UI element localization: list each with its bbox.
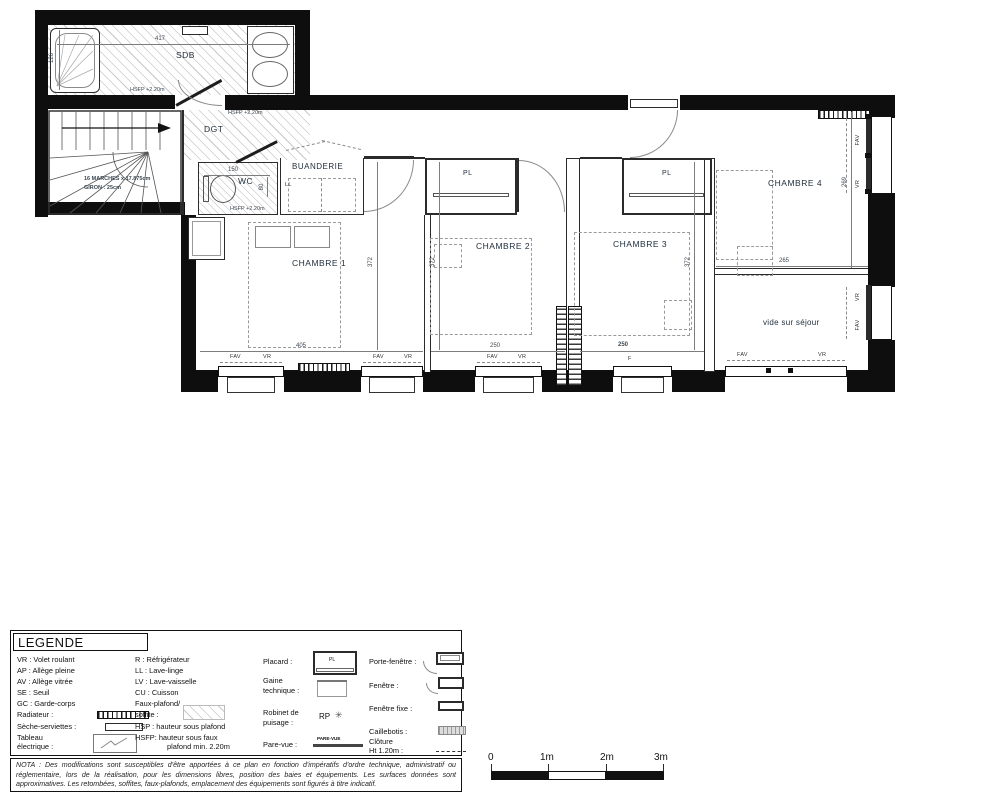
placard-label: PL	[463, 170, 472, 177]
legend-item: LV : Lave-vaisselle	[135, 677, 196, 686]
wall	[868, 95, 895, 118]
legend-item: Placard :	[263, 657, 292, 666]
legend-item: AV : Allège vitrée	[17, 677, 73, 686]
scale-tick	[548, 764, 549, 771]
fav-label: FAV	[487, 354, 498, 360]
placard-ch3	[622, 158, 712, 215]
hsfp-note: HSFP +2.20m	[230, 206, 265, 212]
vr-label: VR	[518, 354, 526, 360]
window	[613, 366, 672, 377]
dim-250: 250	[618, 342, 628, 348]
dgt-hatch	[182, 110, 310, 160]
window-hinge	[865, 153, 872, 158]
legend-item: Tableau	[17, 733, 43, 742]
staircase	[48, 110, 182, 215]
stair-note-1: 16 MARCHES x 17.875cm	[84, 176, 150, 182]
legend-item: Gaine	[263, 676, 283, 685]
fenetre-symbol	[438, 677, 464, 689]
wall	[423, 370, 475, 392]
dim-line	[439, 162, 440, 350]
placard-label: PL	[662, 170, 671, 177]
fav-label: FAV	[230, 354, 241, 360]
dim-line	[851, 112, 852, 268]
window-sill	[227, 377, 275, 393]
window-sill	[483, 377, 534, 393]
fav-label: FAV	[373, 354, 384, 360]
toilet-bowl	[210, 175, 236, 203]
wall	[680, 95, 895, 110]
dim-line	[580, 351, 704, 352]
legend-item: VR : Volet roulant	[17, 655, 75, 664]
scale-tick-label: 1m	[540, 752, 554, 763]
legend-item: Fenêtre :	[369, 681, 399, 690]
ch3-door-arc	[630, 110, 678, 158]
window-swing	[727, 360, 845, 361]
room-label-ch4: CHAMBRE 4	[768, 178, 822, 188]
dim-372: 372	[685, 257, 691, 267]
dim-line	[431, 351, 565, 352]
wall	[672, 370, 725, 392]
robinet-symbol-text: RP	[319, 712, 330, 721]
placard-symbol-shelf	[316, 668, 354, 672]
stair-note-2: GIRON : 25cm	[84, 185, 121, 191]
ch2-door-arc	[519, 160, 565, 212]
stair-dgt-divider	[182, 110, 184, 215]
fenetre-fixe-symbol	[438, 701, 464, 711]
window-sill	[369, 377, 415, 393]
legend-item: AP : Allège pleine	[17, 666, 75, 675]
dim-line	[716, 266, 868, 267]
gaine-symbol-edge	[317, 680, 347, 682]
placard-ch2-shelf	[433, 193, 509, 197]
placard-ch3-shelf	[629, 193, 704, 197]
dim-line	[694, 162, 695, 350]
window-hinge	[766, 368, 771, 373]
hsfp-note: HSFP +2.20m	[130, 87, 165, 93]
room-label-dgt: DGT	[204, 124, 223, 134]
scale-segment	[491, 771, 548, 780]
legend-item: SE : Seuil	[17, 688, 49, 697]
ch1-door-arc	[364, 160, 414, 212]
ch1-door-leaf	[364, 156, 414, 159]
caillebotis-symbol	[438, 726, 466, 735]
robinet-symbol-glyph: ✳	[335, 710, 343, 721]
legend-item: CU : Cuisson	[135, 688, 179, 697]
scale-tick-label: 0	[488, 752, 494, 763]
window	[361, 366, 423, 377]
scale-segment	[606, 771, 664, 780]
vr-label: VR	[855, 293, 861, 301]
scale-bar: 0 1m 2m 3m	[488, 752, 672, 784]
gaine-symbol	[317, 680, 347, 697]
scale-tick	[663, 764, 664, 771]
parevue-symbol-text: PARE-VUE	[317, 736, 340, 741]
dim-150: 150	[228, 167, 238, 173]
electrical-panel-zigzag	[93, 734, 137, 753]
window-swing	[846, 287, 847, 339]
dim-372: 372	[368, 257, 374, 267]
corridor-line	[580, 157, 622, 159]
legend-item: HSP : hauteur sous plafond	[135, 722, 225, 731]
pillow	[294, 226, 330, 248]
bed-ch3-fold	[664, 300, 692, 330]
legend-item: Porte-fenêtre :	[369, 657, 416, 666]
room-label-buanderie: BUANDERIE	[292, 162, 343, 171]
vr-label: VR	[404, 354, 412, 360]
toilet-tank	[203, 176, 209, 202]
dim-line	[267, 177, 268, 197]
window	[871, 116, 892, 194]
radiator	[298, 363, 350, 372]
room-label-vide: vide sur séjour	[763, 318, 820, 327]
bed-ch4-fold	[737, 246, 773, 276]
legend-item: soffite :	[135, 710, 159, 719]
legend-item: électrique :	[17, 742, 53, 751]
room-label-ch2: CHAMBRE 2	[476, 241, 530, 251]
dim-line	[204, 175, 270, 176]
accordion-door	[322, 140, 361, 150]
legend-item: technique :	[263, 686, 299, 695]
scale-segment	[548, 771, 606, 780]
f-label: F	[628, 356, 632, 362]
washer-dryer	[288, 178, 356, 212]
window	[725, 366, 847, 377]
legend-item: Faux-plafond/	[135, 699, 180, 708]
wall	[868, 193, 895, 287]
vr-label: VR	[855, 180, 861, 188]
legend: LEGENDE VR : Volet roulant AP : Allège p…	[10, 630, 462, 756]
legend-item: puisage :	[263, 718, 293, 727]
vr-label: VR	[818, 352, 826, 358]
towel-dryer	[182, 26, 208, 35]
dim-80: 80	[259, 184, 265, 191]
dim-417: 417	[155, 36, 165, 42]
wall	[181, 370, 218, 392]
wall	[35, 10, 310, 25]
window-swing	[477, 362, 540, 363]
legend-item: Robinet de	[263, 708, 299, 717]
fav-label: FAV	[855, 320, 861, 331]
room-label-ch3: CHAMBRE 3	[613, 239, 667, 249]
desk-inner	[192, 221, 221, 256]
fav-label: FAV	[855, 135, 861, 146]
window-swing	[363, 362, 421, 363]
window-hinge	[788, 368, 793, 373]
window	[475, 366, 542, 377]
room-label-sdb: SDB	[176, 50, 195, 60]
floor-plan-page: 16 MARCHES x 17.875cm GIRON : 25cm LL PL…	[0, 0, 984, 800]
cloture-symbol	[436, 751, 466, 752]
hsfp-note: HSFP +2.20m	[228, 110, 263, 116]
sdb-door-arc	[178, 80, 222, 106]
washbasin	[252, 32, 288, 58]
window-hinge	[865, 114, 872, 119]
dim-269: 269	[842, 177, 848, 187]
legend-item: LL : Lave-linge	[135, 666, 183, 675]
dim-line	[200, 351, 423, 352]
dim-line	[377, 162, 378, 350]
pillow	[255, 226, 291, 248]
ll-label: LL	[285, 182, 292, 188]
radiator	[818, 110, 870, 119]
scale-tick	[606, 764, 607, 771]
legend-item: plafond min. 2.20m	[167, 742, 230, 751]
window	[218, 366, 284, 377]
porte-fenetre-arc	[423, 661, 437, 674]
wall	[868, 340, 895, 392]
scale-tick-label: 2m	[600, 752, 614, 763]
dim-line	[57, 44, 290, 45]
washbasin	[252, 61, 288, 87]
room-label-ch1: CHAMBRE 1	[292, 258, 346, 268]
scale-tick-label: 3m	[654, 752, 668, 763]
legend-item: R : Réfrigérateur	[135, 655, 190, 664]
legend-title: LEGENDE	[13, 633, 148, 651]
legend-item: Caillebotis :	[369, 727, 407, 736]
legend-item: Pare-vue :	[263, 740, 297, 749]
window	[871, 285, 892, 340]
legend-item: Sèche-serviettes :	[17, 722, 76, 731]
window-swing	[220, 362, 282, 363]
soffit-symbol	[183, 705, 225, 720]
porte-fenetre-inner	[440, 655, 460, 661]
nota-text: NOTA : Des modifications sont susceptibl…	[10, 758, 462, 792]
legend-item: GC : Garde-corps	[17, 699, 75, 708]
wall	[225, 95, 628, 110]
room-label-wc: WC	[238, 176, 253, 186]
wall	[284, 370, 361, 392]
vr-label: VR	[263, 354, 271, 360]
parevue-symbol-line	[313, 744, 363, 747]
placard-symbol-text: PL	[329, 657, 335, 663]
legend-item: Fenêtre fixe :	[369, 704, 412, 713]
legend-item: Ht 1.20m :	[369, 746, 403, 755]
dim-405: 405	[296, 343, 306, 349]
wall	[35, 10, 48, 217]
legend-item: Radiateur :	[17, 710, 53, 719]
scale-tick	[491, 764, 492, 771]
dim-126: 126	[49, 53, 55, 63]
dim-372: 372	[430, 257, 436, 267]
fenetre-arc	[426, 683, 438, 694]
legend-item: Clôture	[369, 737, 393, 746]
window-hinge	[865, 189, 872, 194]
dim-250: 250	[490, 343, 500, 349]
fav-label: FAV	[737, 352, 748, 358]
window-sill	[621, 377, 664, 393]
ch3-door-leaf	[630, 99, 678, 108]
dim-line	[59, 30, 60, 90]
washer-divider	[321, 178, 322, 212]
shower-fan-lines	[55, 33, 95, 88]
wall	[35, 95, 175, 109]
duct-column	[556, 306, 567, 386]
legend-item: HSFP: hauteur sous faux	[135, 733, 218, 742]
dim-265: 265	[779, 258, 789, 264]
